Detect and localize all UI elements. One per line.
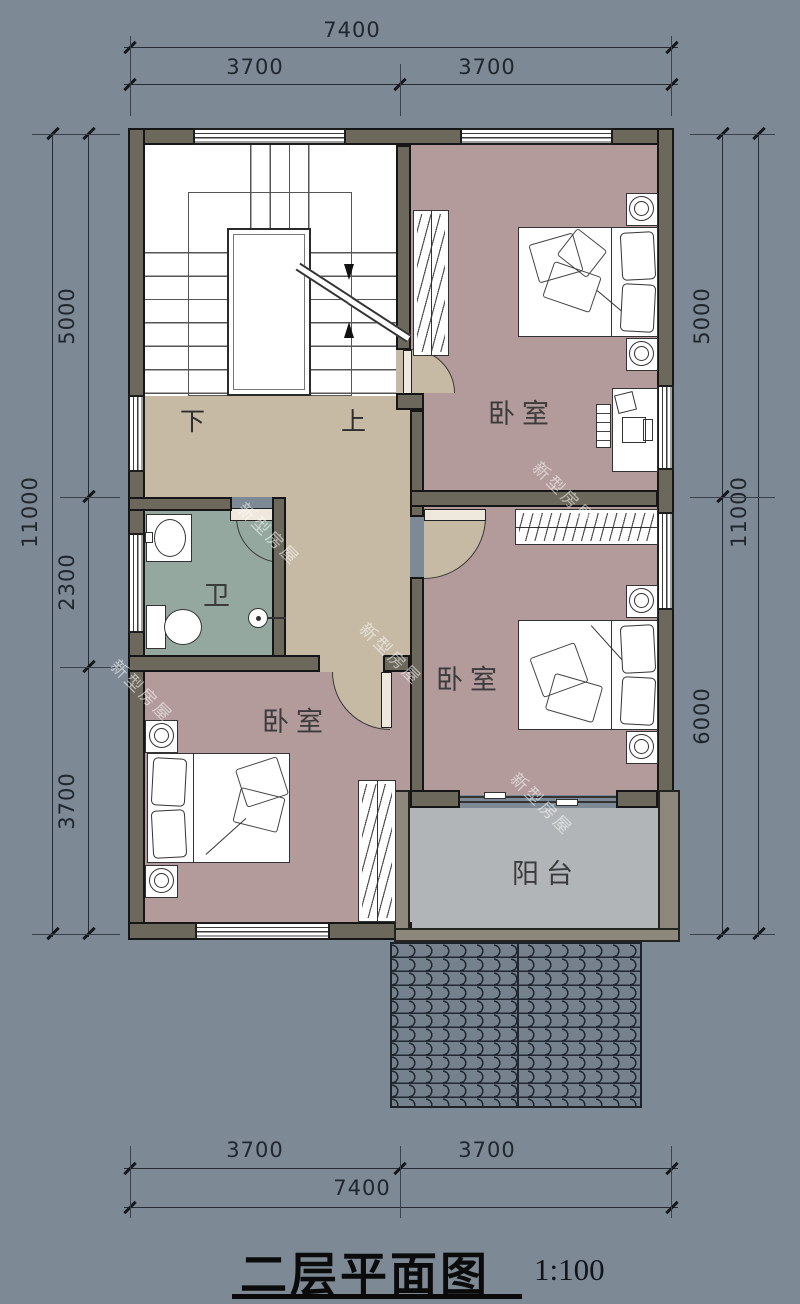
balcony-wall-left: [394, 790, 410, 942]
title-underline: [232, 1294, 522, 1299]
stair-arrow-down: [344, 264, 354, 280]
pillow: [620, 676, 656, 726]
room-label-bedroom-mr: 卧室: [436, 658, 504, 697]
pillow: [151, 809, 187, 859]
wall-hall-stub: [396, 393, 424, 410]
stair-down-label: 下: [180, 402, 205, 438]
dim-line: [722, 133, 723, 937]
pillow: [620, 231, 656, 281]
wall-balcony-stub-left: [410, 790, 460, 808]
dim-top-total: 7400: [323, 18, 380, 42]
stair-arrow-up: [344, 322, 354, 338]
door-gap-bedroom-bl: [320, 655, 383, 672]
pillow: [151, 757, 187, 807]
sink: [146, 514, 192, 562]
toilet-bowl: [164, 609, 202, 645]
window-bedroom-tr-top: [460, 128, 613, 145]
pillow: [620, 283, 656, 333]
dim-left-seg-1: 2300: [55, 553, 79, 610]
dim-right-seg-1: 6000: [690, 687, 714, 744]
room-label-bathroom: 卫: [203, 574, 230, 613]
floor-plan-canvas: 下 上 卧室 卧室 卧室: [0, 0, 800, 1304]
stair-up-label: 上: [341, 402, 366, 438]
window-stairs-top: [193, 128, 346, 145]
toilet: [146, 605, 166, 649]
wall-bedrooms-divider: [410, 490, 658, 507]
window-bedroom-tr-right: [657, 385, 674, 470]
desk-chair: [596, 404, 611, 448]
dim-top-seg-right: 3700: [458, 55, 515, 79]
sliding-door-panel: [484, 792, 506, 799]
nightstand: [626, 731, 658, 764]
wardrobe: [358, 780, 396, 922]
dim-right-seg-0: 5000: [690, 287, 714, 344]
nightstand: [626, 338, 658, 371]
window-bedroom-mr-right: [657, 512, 674, 610]
stair-void: [227, 228, 311, 396]
dim-left-seg-0: 5000: [55, 287, 79, 344]
dim-line: [88, 133, 89, 937]
window-hall-left: [128, 395, 145, 472]
room-label-balcony: 阳台: [512, 852, 580, 891]
wardrobe: [413, 210, 449, 356]
plan-scale: 1:100: [534, 1252, 605, 1288]
roof-tiles: [390, 942, 642, 1108]
dim-top-seg-left: 3700: [226, 55, 283, 79]
wall-balcony-stub-right: [616, 790, 658, 808]
wall-bathroom-bottom: [128, 655, 320, 672]
window-bathroom-left: [128, 533, 145, 633]
wall-bathroom-top: [128, 497, 232, 511]
wall-stair-bedroom: [396, 145, 411, 350]
room-label-bedroom-tr: 卧室: [488, 392, 556, 431]
shower-arm: [267, 617, 286, 619]
desk: [612, 388, 658, 472]
dim-line: [124, 47, 678, 48]
pillow: [620, 624, 656, 674]
nightstand: [145, 865, 178, 898]
dim-left-seg-2: 3700: [55, 772, 79, 829]
dim-line: [124, 1207, 678, 1208]
dim-left-total: 11000: [18, 476, 42, 548]
door-leaf-bedroom-tr: [403, 350, 412, 394]
nightstand: [626, 585, 658, 618]
dim-bottom-seg-right: 3700: [458, 1138, 515, 1162]
door-leaf-bedroom-mr: [424, 509, 486, 521]
shower-head-dot: [256, 616, 261, 621]
balcony-wall-right: [658, 790, 680, 942]
dim-bottom-total: 7400: [333, 1176, 390, 1200]
dim-line: [758, 133, 759, 937]
door-leaf-bedroom-bl: [381, 672, 392, 728]
room-label-bedroom-bl: 卧室: [262, 700, 330, 739]
window-bedroom-bl-bottom: [195, 922, 330, 940]
roof-ridge-line: [517, 944, 519, 1106]
dim-bottom-seg-left: 3700: [226, 1138, 283, 1162]
nightstand: [626, 193, 658, 226]
dim-line: [52, 133, 53, 937]
stair-void-inner: [233, 234, 305, 390]
dim-right-total: 11000: [727, 476, 751, 548]
balcony-wall-bottom: [394, 928, 680, 942]
